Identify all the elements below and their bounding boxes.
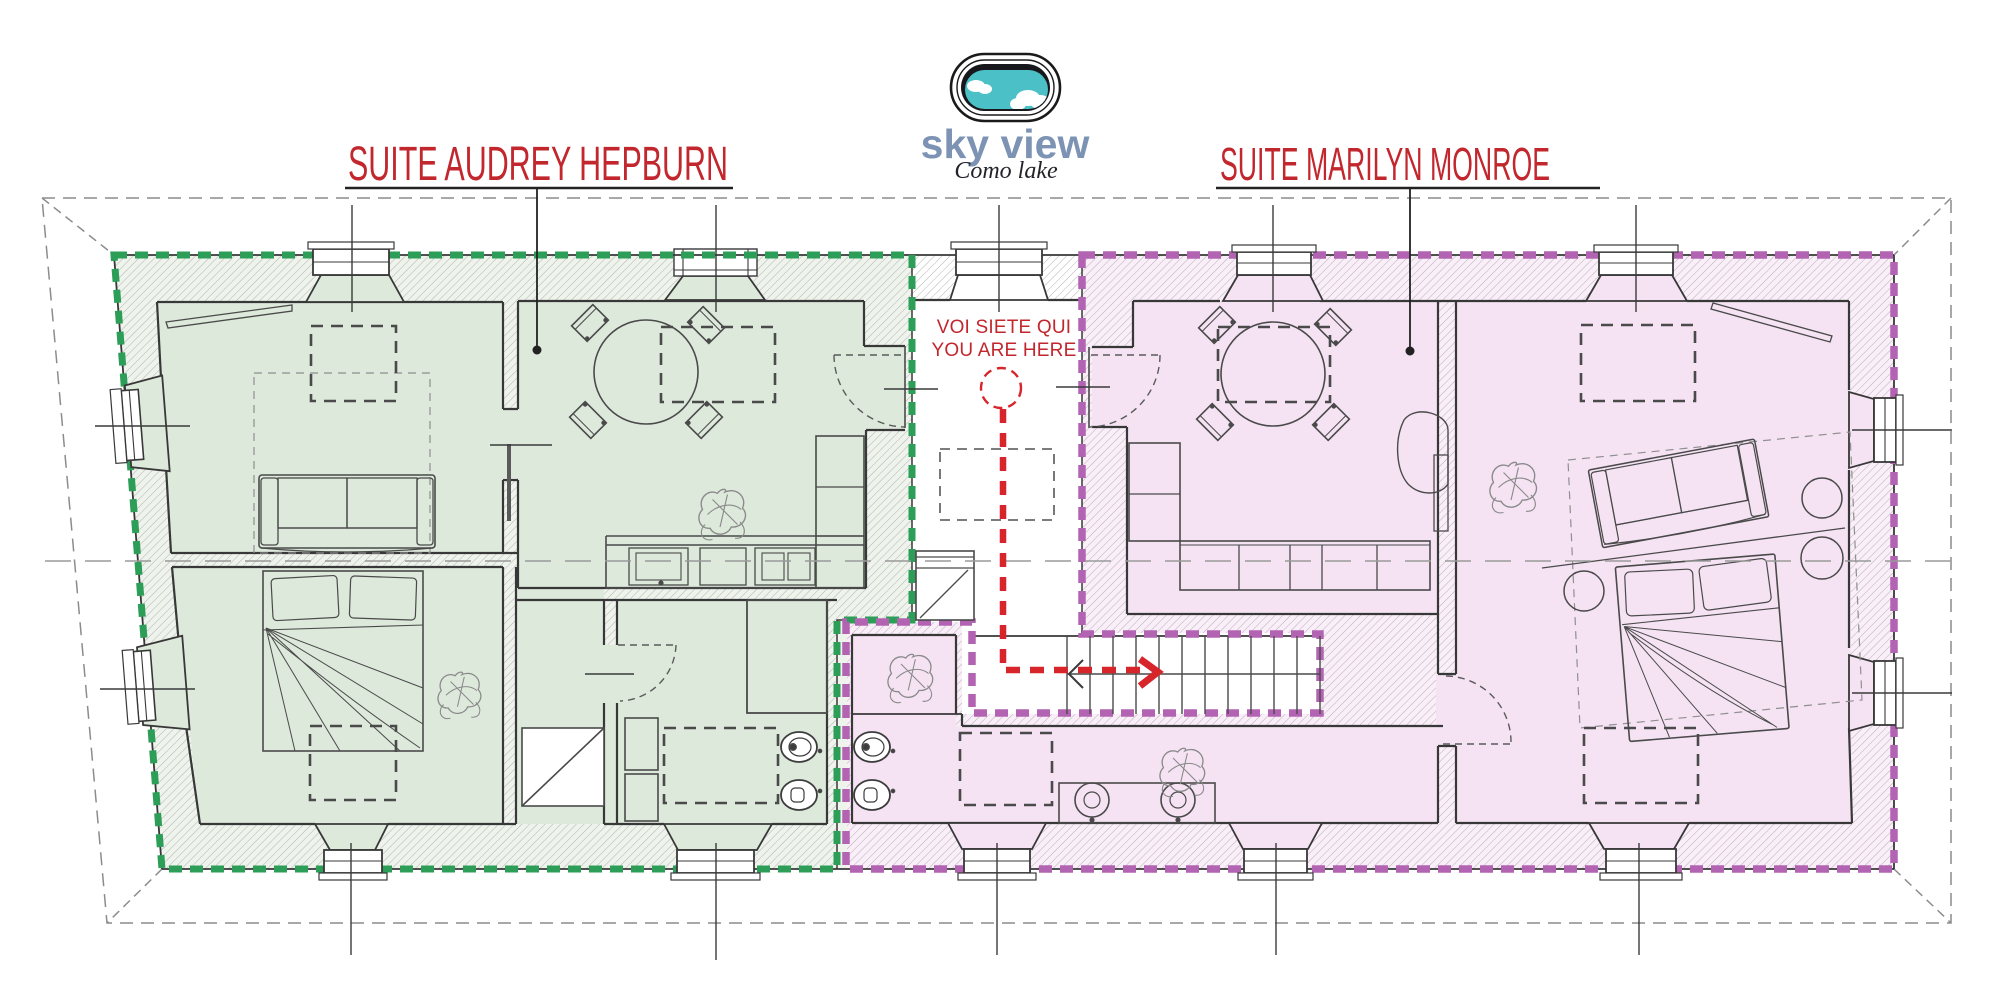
svg-text:Como lake: Como lake: [954, 158, 1058, 184]
svg-text:VOI SIETE QUI: VOI SIETE QUI: [937, 317, 1072, 338]
svg-text:YOU ARE HERE: YOU ARE HERE: [932, 340, 1077, 361]
svg-text:SUITE MARILYN MONROE: SUITE MARILYN MONROE: [1220, 138, 1550, 190]
svg-text:SUITE AUDREY HEPBURN: SUITE AUDREY HEPBURN: [348, 138, 728, 191]
